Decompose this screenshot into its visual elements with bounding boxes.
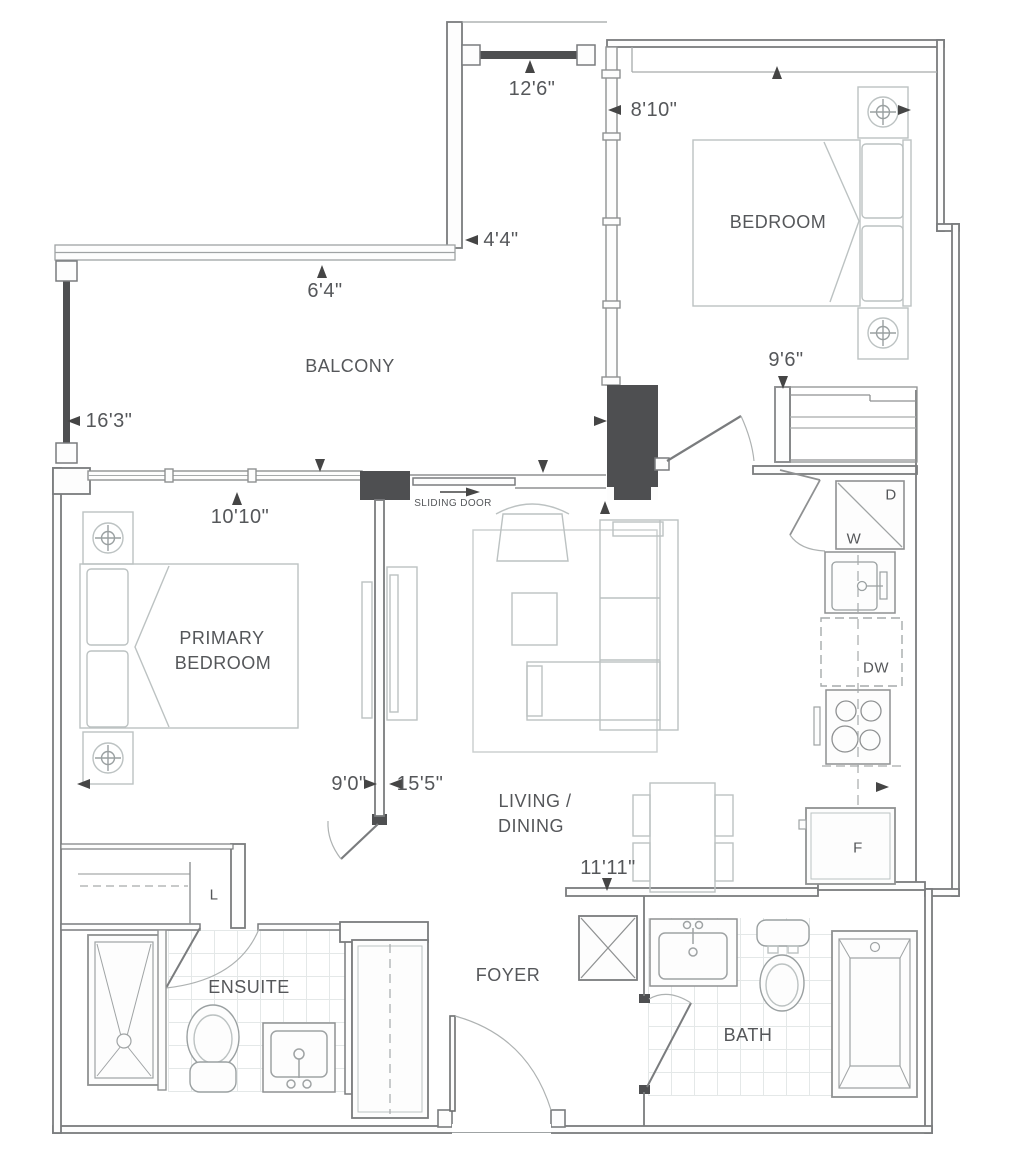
room-label-primary-line2: BEDROOM bbox=[175, 654, 272, 672]
label-dishwasher: DW bbox=[863, 661, 889, 676]
sliding-door bbox=[410, 475, 606, 488]
rug bbox=[473, 530, 657, 752]
arrow-up-10-10 bbox=[232, 492, 242, 505]
dining-table bbox=[633, 783, 733, 892]
furniture bbox=[80, 87, 911, 892]
bedroom-bulkhead bbox=[632, 47, 937, 72]
interior-walls bbox=[61, 387, 925, 1126]
dresser bbox=[362, 582, 372, 718]
arrow-right-8-10-far bbox=[898, 105, 911, 115]
arrow-down-6-4-far bbox=[315, 459, 325, 472]
arrow-down-sliding bbox=[538, 460, 548, 473]
primary-window-wall bbox=[88, 469, 362, 482]
arrow-up-6-4 bbox=[317, 265, 327, 278]
ensuite-vanity bbox=[263, 1023, 335, 1092]
label-fridge: F bbox=[853, 841, 863, 856]
room-label-foyer: FOYER bbox=[476, 966, 541, 984]
floor-plan-page: 12'6" 8'10" 4'4" 6'4" 16'3" 9'6" 10'10" … bbox=[0, 0, 1024, 1170]
room-label-ensuite: ENSUITE bbox=[208, 978, 290, 996]
bath-toilet bbox=[757, 920, 809, 1011]
fridge bbox=[799, 808, 895, 884]
dim-living-width: 15'5" bbox=[397, 774, 444, 794]
shower bbox=[88, 930, 166, 1090]
label-dryer: D bbox=[885, 488, 896, 503]
foyer-closet bbox=[352, 940, 428, 1118]
sofa bbox=[527, 520, 678, 730]
laundry-door bbox=[780, 470, 825, 551]
cooktop bbox=[814, 690, 890, 764]
arrow-right-sliding-door bbox=[466, 488, 480, 497]
label-sliding-door: SLIDING DOOR bbox=[414, 499, 492, 509]
bathtub bbox=[832, 931, 917, 1097]
bedroom-window-wall bbox=[602, 47, 620, 385]
arrow-left-4-4 bbox=[465, 235, 478, 245]
bedroom-door bbox=[667, 416, 754, 461]
ensuite-fixtures bbox=[88, 930, 335, 1092]
dim-living-length: 11'11" bbox=[580, 858, 635, 878]
arrow-up-12-6 bbox=[525, 60, 535, 73]
dishwasher-cabinet bbox=[821, 618, 902, 686]
balcony-side-rail bbox=[63, 266, 70, 458]
dim-primary-width: 9'0" bbox=[331, 774, 366, 794]
linen-closet bbox=[78, 862, 190, 924]
dim-balcony-corner: 4'4" bbox=[483, 230, 518, 250]
room-label-living-line1: LIVING / bbox=[498, 792, 571, 810]
room-label-bath: BATH bbox=[724, 1026, 773, 1044]
bath-vanity bbox=[650, 919, 737, 986]
dim-bedroom-length: 9'6" bbox=[768, 350, 803, 370]
dim-balcony-top: 12'6" bbox=[509, 79, 556, 99]
bath-door bbox=[647, 994, 691, 1087]
kitchen-sink bbox=[825, 552, 895, 613]
dim-balcony-depth: 6'4" bbox=[307, 281, 342, 301]
dim-primary-window: 10'10" bbox=[211, 507, 269, 527]
ensuite-toilet bbox=[187, 1005, 239, 1092]
media-console bbox=[387, 567, 417, 720]
dim-bedroom-width: 8'10" bbox=[631, 100, 678, 120]
dim-balcony-rail: 16'3" bbox=[86, 411, 133, 431]
balcony-top-rail bbox=[465, 51, 592, 59]
armchair bbox=[496, 504, 569, 561]
room-label-bedroom: BEDROOM bbox=[730, 213, 827, 231]
floor-plan-drawing bbox=[0, 0, 1024, 1170]
bath-fixtures bbox=[650, 919, 917, 1097]
arrow-right-4-4-far bbox=[594, 416, 607, 426]
label-linen-closet: L bbox=[210, 888, 219, 903]
column bbox=[607, 385, 658, 500]
arrow-right-15-5-far bbox=[876, 782, 889, 792]
entry-door bbox=[438, 1016, 565, 1134]
primary-bedroom-door bbox=[328, 821, 378, 859]
rail-caps bbox=[56, 45, 669, 500]
room-label-balcony: BALCONY bbox=[305, 357, 395, 375]
label-washer: W bbox=[847, 532, 862, 547]
room-label-primary-line1: PRIMARY bbox=[179, 629, 264, 647]
coffee-table bbox=[512, 593, 557, 645]
bedroom-closet bbox=[775, 387, 917, 462]
arrow-up-11-11-far bbox=[600, 501, 610, 514]
room-label-living-line2: DINING bbox=[498, 817, 564, 835]
